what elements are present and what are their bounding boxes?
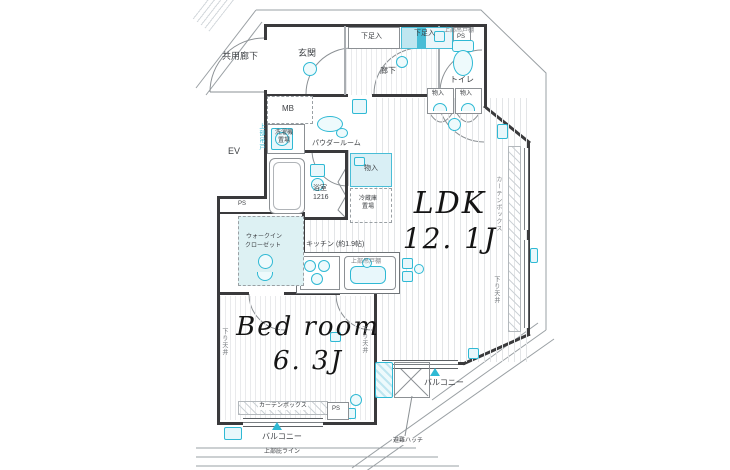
sink-basin bbox=[350, 266, 386, 284]
entrance-light bbox=[303, 62, 317, 76]
powder-cabinet bbox=[352, 99, 367, 114]
wall-bedroom-top-a bbox=[217, 292, 249, 295]
common-corridor-label: 共用廊下 bbox=[222, 51, 258, 61]
floor-plan: 共用廊下 玄関 下足入 下足入 PS 上部吊戸棚 廊下 トイレ 物入 物入 MB… bbox=[0, 0, 730, 470]
closet-2-label: 物入 bbox=[460, 91, 472, 98]
bedroom-light bbox=[350, 394, 362, 406]
balcony-right-label: バルコニー bbox=[424, 378, 464, 387]
evac-hatch-label: 避難ハッチ bbox=[392, 438, 424, 445]
bathtub-inner bbox=[273, 162, 301, 210]
outlet-icon-3 bbox=[414, 264, 424, 274]
mb-label: MB bbox=[282, 104, 294, 113]
outlet-icon-1 bbox=[402, 258, 413, 269]
toilet-label: トイレ bbox=[450, 75, 474, 84]
stove-burner-2 bbox=[318, 260, 330, 272]
ps-bottom-label: PS bbox=[332, 406, 340, 413]
bedroom-window bbox=[243, 418, 323, 427]
ldk-east-window-2 bbox=[520, 240, 529, 328]
wic-label-line1: ウォークイン bbox=[246, 234, 282, 241]
balcony-right-vent-marker bbox=[430, 368, 440, 376]
entrance-label: 玄関 bbox=[298, 48, 316, 58]
bath-counter-icon bbox=[310, 164, 325, 177]
closet-2-icon bbox=[461, 103, 475, 111]
ldk-light bbox=[448, 118, 461, 131]
balcony-bottom-label: バルコニー bbox=[262, 432, 302, 441]
wall-hall-south-2 bbox=[372, 94, 434, 97]
stove-burner-1 bbox=[304, 260, 316, 272]
powder-room-label: パウダールーム bbox=[312, 140, 361, 148]
bedroom-size: 6. 3J bbox=[238, 346, 378, 376]
wall-left-lower bbox=[217, 196, 220, 425]
powder-stool-icon bbox=[336, 128, 348, 138]
hallway-label: 廊下 bbox=[380, 66, 396, 75]
front-door-arc bbox=[210, 38, 264, 92]
fridge-label-line1: 冷蔵庫 bbox=[359, 196, 377, 203]
balcony-ac-unit bbox=[224, 427, 242, 440]
wall-toilet-right bbox=[484, 24, 487, 108]
ceiling-light-hall bbox=[396, 56, 408, 68]
down-ceiling-left-label: 下り天井 bbox=[220, 328, 227, 356]
upper-shelf-kitchen-label: 上部吊戸棚 bbox=[351, 259, 381, 266]
curtain-box-right-label: カーテンボックス bbox=[494, 176, 501, 232]
shoe-box-2-label: 下足入 bbox=[414, 30, 435, 38]
toilet-bowl-icon bbox=[453, 50, 473, 76]
balcony-vent-marker bbox=[272, 422, 282, 430]
bath-size-label: 1216 bbox=[313, 194, 329, 202]
ev-label: EV bbox=[228, 146, 240, 156]
wall-left-upper-a bbox=[264, 24, 267, 40]
ldk-icon-1 bbox=[497, 124, 508, 139]
stove-burner-3 bbox=[311, 273, 323, 285]
eaves-line-label: 上部庇ライン bbox=[262, 449, 302, 456]
kitchen-label: キッチン (約1.9帖) bbox=[306, 241, 364, 249]
down-ceiling-right-label: 下り天井 bbox=[360, 326, 367, 354]
corridor-diagonal bbox=[196, 10, 256, 88]
wall-bath-right bbox=[345, 150, 348, 220]
fridge-label-line2: 置場 bbox=[362, 204, 374, 211]
ldk-east-window-1 bbox=[520, 148, 529, 230]
ldk-outlet-right bbox=[530, 248, 538, 263]
curtain-box-bottom-label: カーテンボックス bbox=[258, 403, 308, 410]
upper-cabinet-washer-label: 上部吊戸 bbox=[257, 123, 264, 151]
ldk-title: LDK bbox=[390, 186, 510, 221]
evac-hatch-leader bbox=[405, 396, 412, 436]
wall-jog bbox=[217, 196, 267, 199]
washer-label-line2: 置場 bbox=[278, 138, 290, 145]
closet-1-label: 物入 bbox=[432, 91, 444, 98]
down-ceiling-ldk-label: 下り天井 bbox=[492, 276, 499, 304]
upper-shelf-toilet-label: 上部吊戸棚 bbox=[444, 28, 474, 35]
closet-3-label: 物入 bbox=[364, 165, 378, 173]
bath-label: 浴室 bbox=[313, 185, 327, 193]
partition-genkan-hall bbox=[344, 26, 346, 95]
washer-label-line1: 洗濯機 bbox=[275, 130, 293, 137]
ldk-icon-2 bbox=[468, 348, 479, 359]
ps-top-label: PS bbox=[457, 34, 465, 41]
closet-1-icon bbox=[433, 103, 447, 111]
shoe-box-1-label: 下足入 bbox=[361, 33, 382, 41]
wic-hanger-icon bbox=[258, 254, 273, 269]
outlet-icon-2 bbox=[402, 271, 413, 282]
ps-mid-label: PS bbox=[238, 201, 246, 208]
wic-label-line2: クローゼット bbox=[245, 243, 281, 250]
